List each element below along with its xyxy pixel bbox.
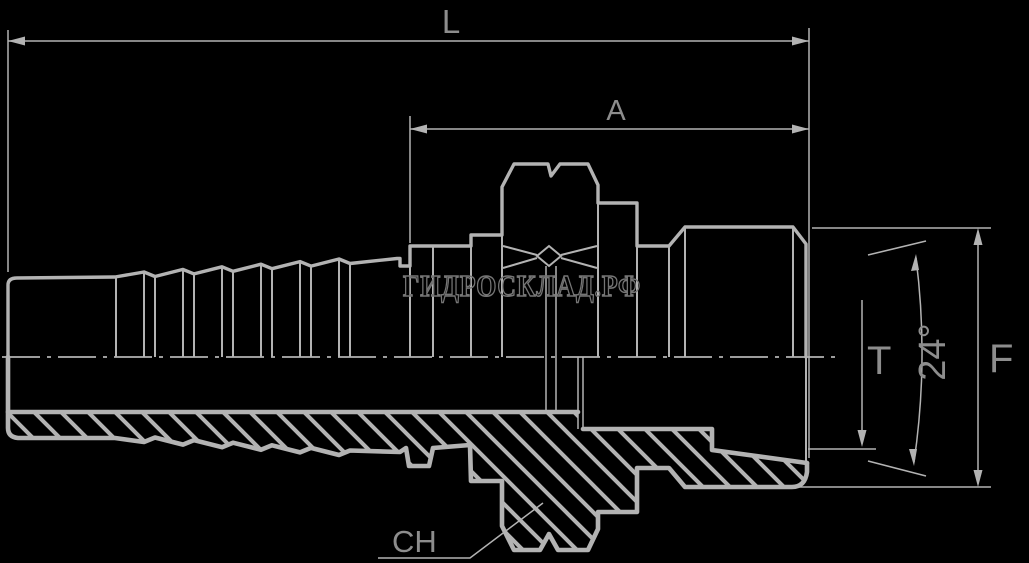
a-label: A xyxy=(606,95,626,127)
technical-drawing-page: L A F T xyxy=(0,0,1029,563)
l-label: L xyxy=(442,3,460,40)
f-label: F xyxy=(989,337,1013,381)
t-label: T xyxy=(867,339,891,383)
fitting-technical-drawing: L A F T xyxy=(0,0,1029,563)
cone-angle-label: 24° xyxy=(912,323,954,380)
watermark-text: ГИДРОСКЛАД.РФ xyxy=(403,268,641,303)
ch-label: CH xyxy=(392,524,437,559)
